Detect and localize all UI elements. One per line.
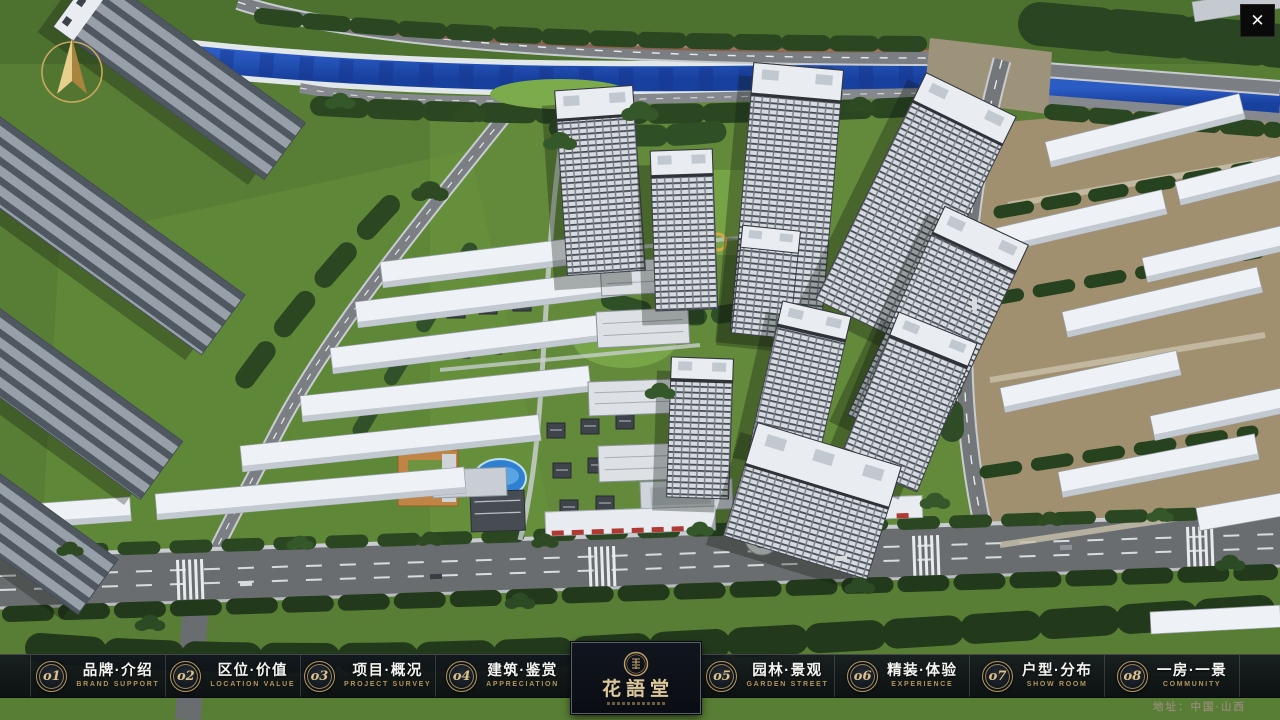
nav-number-2: o2	[177, 669, 195, 684]
nav-item-brand[interactable]: o1 品牌·介绍BRAND SUPPORT	[31, 655, 166, 697]
nav-label-en-5: GARDEN STREET	[746, 681, 828, 688]
nav-badge-7: o7	[982, 661, 1013, 692]
address-text: 地址：中国·山西	[1153, 699, 1246, 714]
nav-item-location[interactable]: o2 区位·价值LOCATION VALUE	[166, 655, 301, 697]
logo-huayutang[interactable]: 花語堂	[571, 642, 701, 714]
nav-badge-6: o6	[847, 661, 878, 692]
nav-badge-8: o8	[1117, 661, 1148, 692]
nav-number-6: o6	[854, 669, 872, 684]
nav-number-7: o7	[989, 669, 1007, 684]
master-plan-map[interactable]	[0, 0, 1280, 720]
nav-number-3: o3	[311, 669, 329, 684]
logo-title: 花語堂	[597, 680, 674, 699]
nav-item-architecture[interactable]: o4 建筑·鉴赏APPRECIATION	[436, 655, 571, 697]
nav-label-zh-8: 一房·一景	[1157, 664, 1227, 679]
nav-badge-5: o5	[706, 661, 737, 692]
nav-label-en-4: APPRECIATION	[486, 681, 559, 688]
nav-item-floorplan[interactable]: o7 户型·分布SHOW ROOM	[970, 655, 1105, 697]
nav-item-view[interactable]: o8 一房·一景COMMUNITY	[1105, 655, 1240, 697]
nav-label-en-3: PROJECT SURVEY	[344, 681, 431, 688]
nav-left-spacer	[0, 655, 31, 697]
bottom-nav-bar: o1 品牌·介绍BRAND SUPPORT o2 区位·价值LOCATION V…	[0, 654, 1280, 698]
nav-label-zh-4: 建筑·鉴赏	[487, 664, 557, 679]
logo-subtitle-line	[607, 702, 665, 705]
nav-badge-3: o3	[304, 661, 335, 692]
nav-number-4: o4	[453, 669, 471, 684]
nav-label-en-2: LOCATION VALUE	[210, 681, 295, 688]
nav-label-en-8: COMMUNITY	[1163, 681, 1221, 688]
close-button[interactable]: ✕	[1240, 4, 1275, 37]
nav-badge-4: o4	[446, 661, 477, 692]
nav-item-landscape[interactable]: o5 园林·景观GARDEN STREET	[701, 655, 836, 697]
nav-label-zh-7: 户型·分布	[1022, 664, 1092, 679]
nav-label-zh-1: 品牌·介绍	[83, 664, 153, 679]
nav-label-en-7: SHOW ROOM	[1027, 681, 1088, 688]
nav-label-zh-3: 项目·概况	[353, 664, 423, 679]
nav-label-zh-5: 园林·景观	[752, 664, 822, 679]
nav-badge-2: o2	[170, 661, 201, 692]
nav-label-en-1: BRAND SUPPORT	[76, 681, 159, 688]
nav-item-interior[interactable]: o6 精装·体验EXPERIENCE	[835, 655, 970, 697]
nav-number-8: o8	[1124, 669, 1142, 684]
nav-right-spacer	[1240, 655, 1280, 697]
nav-item-project[interactable]: o3 项目·概况PROJECT SURVEY	[301, 655, 436, 697]
nav-label-zh-6: 精装·体验	[887, 664, 957, 679]
nav-label-zh-2: 区位·价值	[218, 664, 288, 679]
nav-number-1: o1	[43, 669, 61, 684]
nav-badge-1: o1	[36, 661, 67, 692]
logo-seal-icon	[623, 651, 649, 677]
nav-label-en-6: EXPERIENCE	[891, 681, 953, 688]
nav-number-5: o5	[713, 669, 731, 684]
